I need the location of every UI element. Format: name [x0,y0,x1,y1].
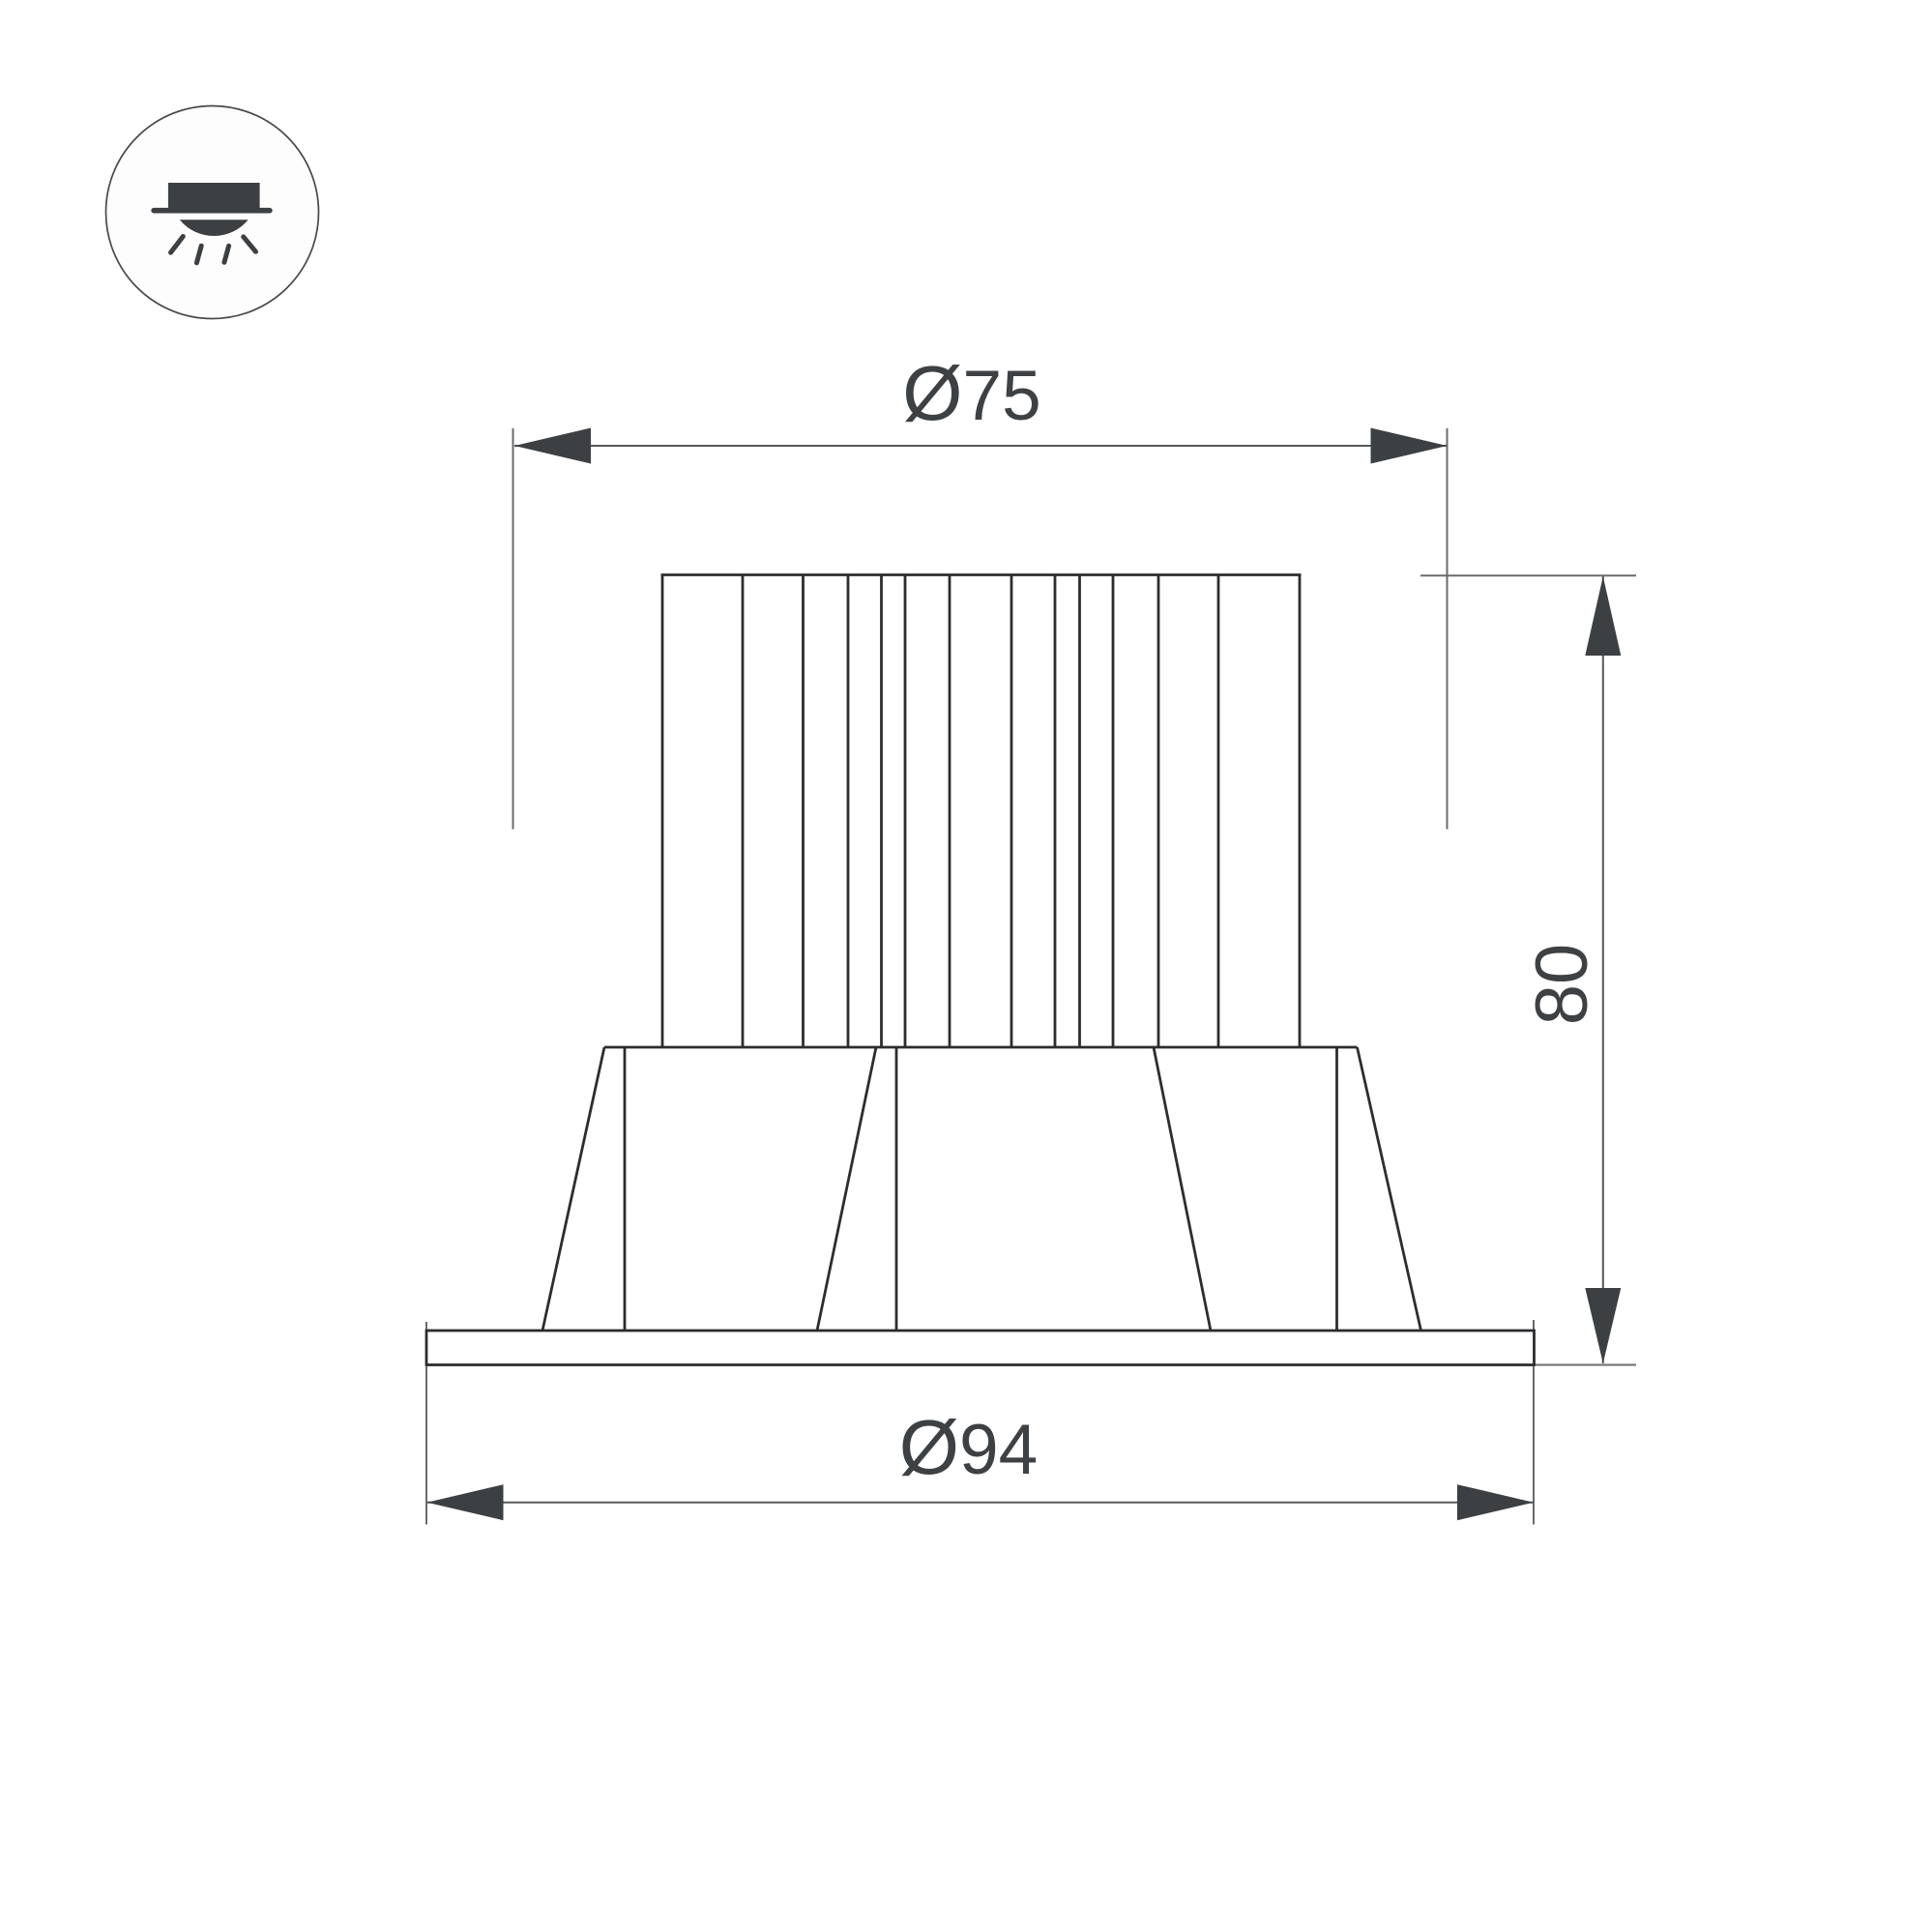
svg-text:Ø94: Ø94 [899,1404,1038,1490]
svg-text:Ø75: Ø75 [902,350,1040,436]
svg-text:80: 80 [1521,944,1603,1026]
